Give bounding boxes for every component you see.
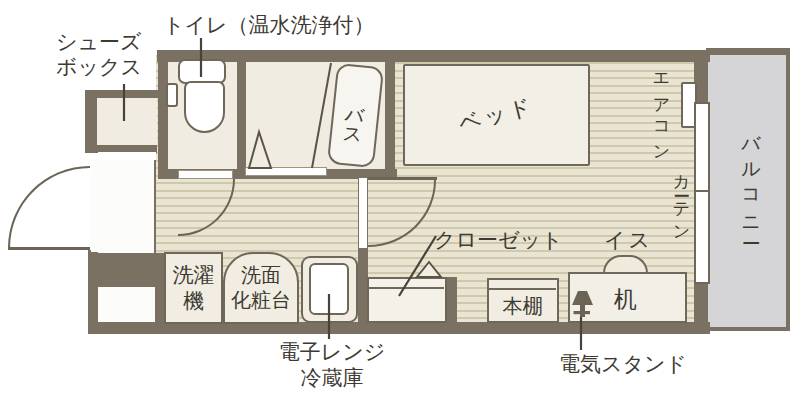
bath-folding-door-icon [249,132,271,168]
closet-label: クローゼット [434,228,562,253]
shoebox-label: シューズ ボックス [56,30,142,80]
shoebox-label-line1: シューズ [56,30,142,55]
balcony-label: バルコニー [739,122,765,238]
desk-lamp-icon [572,291,593,317]
bath-partition-line [312,63,331,168]
chair-label: イス [604,228,653,253]
closet-folding-door-icon [417,262,441,277]
toilet-label: トイレ（温水洗浄付） [163,13,374,38]
lamp-label: 電気スタンド [559,352,687,377]
appliance-label-line1: 電子レンジ [272,339,392,365]
shoebox-label-line2: ボックス [56,55,142,80]
appliance-label-line2: 冷蔵庫 [272,365,392,391]
floor-plan: ベッド バス 洗濯 機 洗面 化粧台 本棚 机 [0,0,800,400]
curtain-label: カーテン [671,163,694,237]
appliance-label: 電子レンジ 冷蔵庫 [272,339,392,391]
aircon-label: エアコン [651,63,674,157]
